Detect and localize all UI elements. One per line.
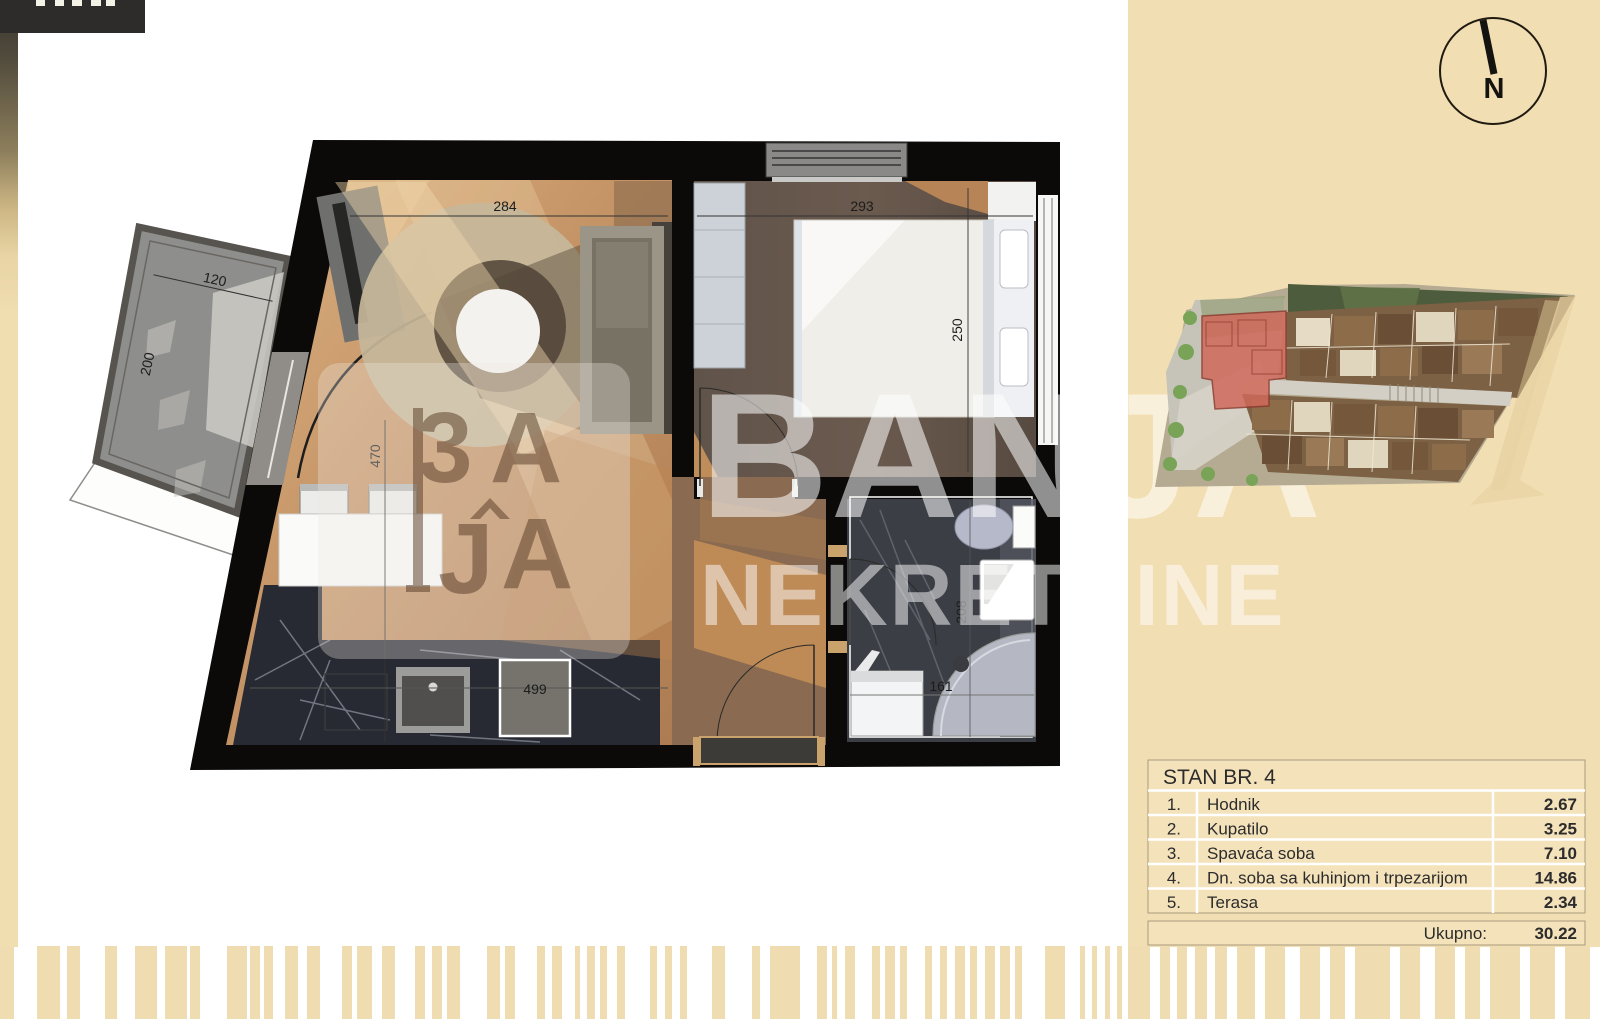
svg-text:STAN BR. 4: STAN BR. 4 bbox=[1163, 766, 1276, 789]
svg-text:250: 250 bbox=[949, 318, 965, 342]
svg-text:30.22: 30.22 bbox=[1534, 924, 1577, 943]
svg-text:3.: 3. bbox=[1167, 844, 1181, 863]
svg-text:A: A bbox=[490, 392, 562, 504]
svg-text:J: J bbox=[438, 503, 494, 615]
svg-text:Dn. soba sa kuhinjom i trpezar: Dn. soba sa kuhinjom i trpezarijom bbox=[1207, 869, 1468, 888]
svg-text:2.34: 2.34 bbox=[1544, 893, 1578, 912]
svg-text:5.: 5. bbox=[1167, 893, 1181, 912]
svg-text:Ukupno:: Ukupno: bbox=[1424, 924, 1487, 943]
svg-text:NEKRETNINE: NEKRETNINE bbox=[700, 547, 1286, 644]
svg-text:2.67: 2.67 bbox=[1544, 795, 1577, 814]
svg-text:14.86: 14.86 bbox=[1534, 869, 1577, 888]
svg-text:3.25: 3.25 bbox=[1544, 820, 1577, 839]
svg-text:293: 293 bbox=[850, 198, 874, 214]
svg-text:Spavaća soba: Spavaća soba bbox=[1207, 844, 1315, 863]
svg-text:Hodnik: Hodnik bbox=[1207, 795, 1260, 814]
svg-text:499: 499 bbox=[523, 681, 547, 697]
svg-text:1.: 1. bbox=[1167, 795, 1181, 814]
svg-text:3: 3 bbox=[417, 392, 473, 504]
svg-text:A: A bbox=[501, 498, 573, 610]
svg-text:7.10: 7.10 bbox=[1544, 844, 1577, 863]
svg-text:Kupatilo: Kupatilo bbox=[1207, 820, 1268, 839]
svg-text:Terasa: Terasa bbox=[1207, 893, 1259, 912]
svg-text:4.: 4. bbox=[1167, 869, 1181, 888]
svg-text:284: 284 bbox=[493, 198, 517, 214]
svg-text:N: N bbox=[1484, 73, 1505, 105]
svg-text:2.: 2. bbox=[1167, 820, 1181, 839]
svg-text:161: 161 bbox=[929, 678, 953, 694]
